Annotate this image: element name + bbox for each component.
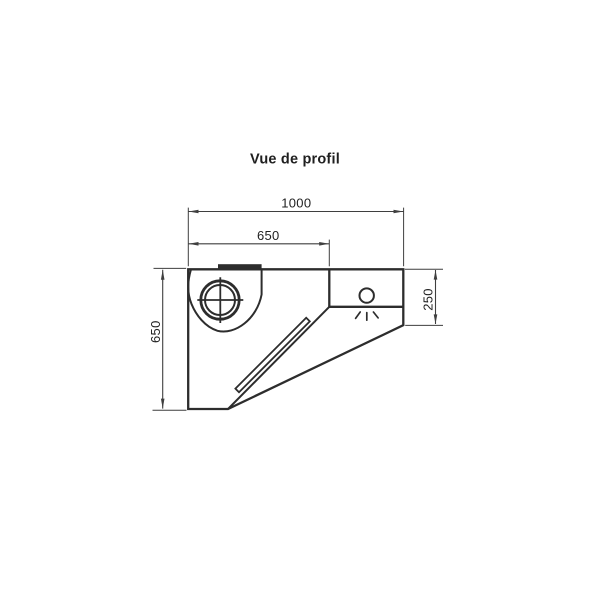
exhaust-outlet [218,264,262,269]
fan-motor-icon [188,264,261,331]
dimension-motor-section-width: 650 [189,228,330,266]
inclined-panel-line [228,307,329,409]
arrowhead-left [189,210,199,214]
dimension-front-section-height: 250 [405,269,443,325]
dimension-overall-width: 1000 [188,195,403,266]
profile-drawing: Vue de profil [0,0,600,600]
fan-crosshair [197,277,243,323]
arrowhead-bottom [434,314,438,324]
dim-value: 650 [257,228,280,243]
arrowhead-bottom [161,399,165,409]
dim-value: 650 [148,320,163,343]
screenshot-canvas: Vue de profil [0,0,600,600]
lamp-bulb-circle [360,288,374,302]
lamp-rays [356,312,379,320]
arrowhead-left [189,242,199,246]
extension-lines [188,208,403,267]
dim-value: 250 [421,288,436,311]
arrowhead-top [434,270,438,280]
arrowhead-top [161,270,165,280]
dim-value: 1000 [281,195,311,210]
grease-filter-strip [235,318,309,392]
dimension-overall-height: 650 [148,268,187,410]
arrowhead-right [394,210,404,214]
lamp-icon [356,288,379,320]
arrowhead-right [319,242,329,246]
drawing-title: Vue de profil [250,152,340,168]
